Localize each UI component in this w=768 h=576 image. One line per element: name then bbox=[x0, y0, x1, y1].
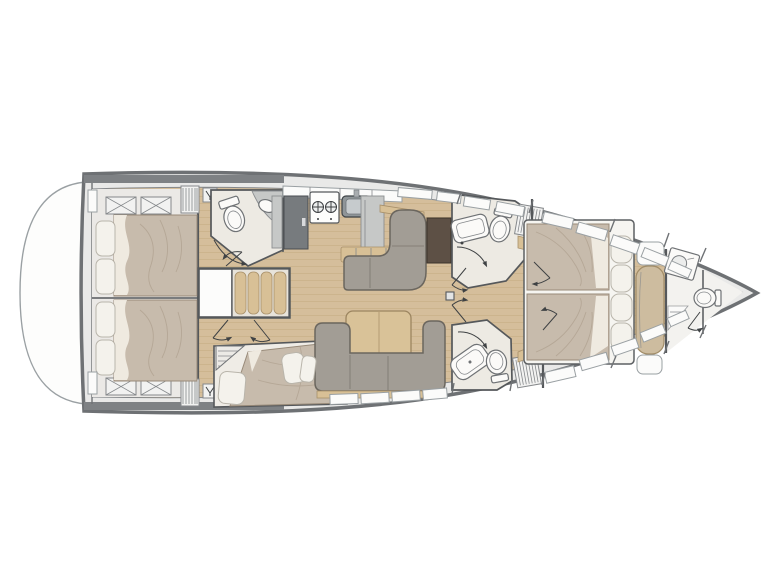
companionway-steps-icon bbox=[232, 269, 289, 317]
locker bbox=[88, 190, 97, 212]
pillow bbox=[96, 340, 115, 375]
toilet-icon bbox=[694, 289, 721, 308]
pillow bbox=[611, 294, 632, 321]
pillow bbox=[96, 221, 115, 256]
louver-vent-icon bbox=[181, 379, 199, 406]
stove-burner-icon bbox=[310, 192, 339, 223]
swim-platform bbox=[20, 182, 86, 404]
mast-foot-icon bbox=[446, 292, 454, 300]
deck-slot bbox=[361, 392, 389, 403]
deck-slot bbox=[392, 390, 421, 402]
cockpit-coaming-top bbox=[84, 175, 284, 183]
deck-slot bbox=[330, 394, 358, 405]
deck-slot bbox=[423, 388, 448, 400]
pillow bbox=[96, 259, 115, 294]
pillow bbox=[611, 265, 632, 292]
vanity-seat bbox=[637, 355, 662, 374]
galley-cabinet bbox=[272, 196, 282, 248]
yacht-floorplan-canvas bbox=[0, 0, 768, 576]
engine-box bbox=[199, 269, 232, 317]
deck-hatch-icon bbox=[106, 197, 136, 214]
locker bbox=[88, 372, 97, 394]
nav-panel bbox=[427, 218, 451, 263]
louver-vent-icon bbox=[181, 186, 199, 213]
pillow bbox=[218, 371, 247, 405]
pillow bbox=[299, 355, 316, 383]
fridge-icon bbox=[284, 196, 308, 249]
aft-port-bed bbox=[96, 215, 197, 296]
aft-starboard-bed bbox=[96, 300, 197, 381]
yacht-floorplan bbox=[0, 0, 768, 576]
pillow bbox=[96, 302, 115, 337]
deck-hatch-icon bbox=[141, 197, 171, 214]
